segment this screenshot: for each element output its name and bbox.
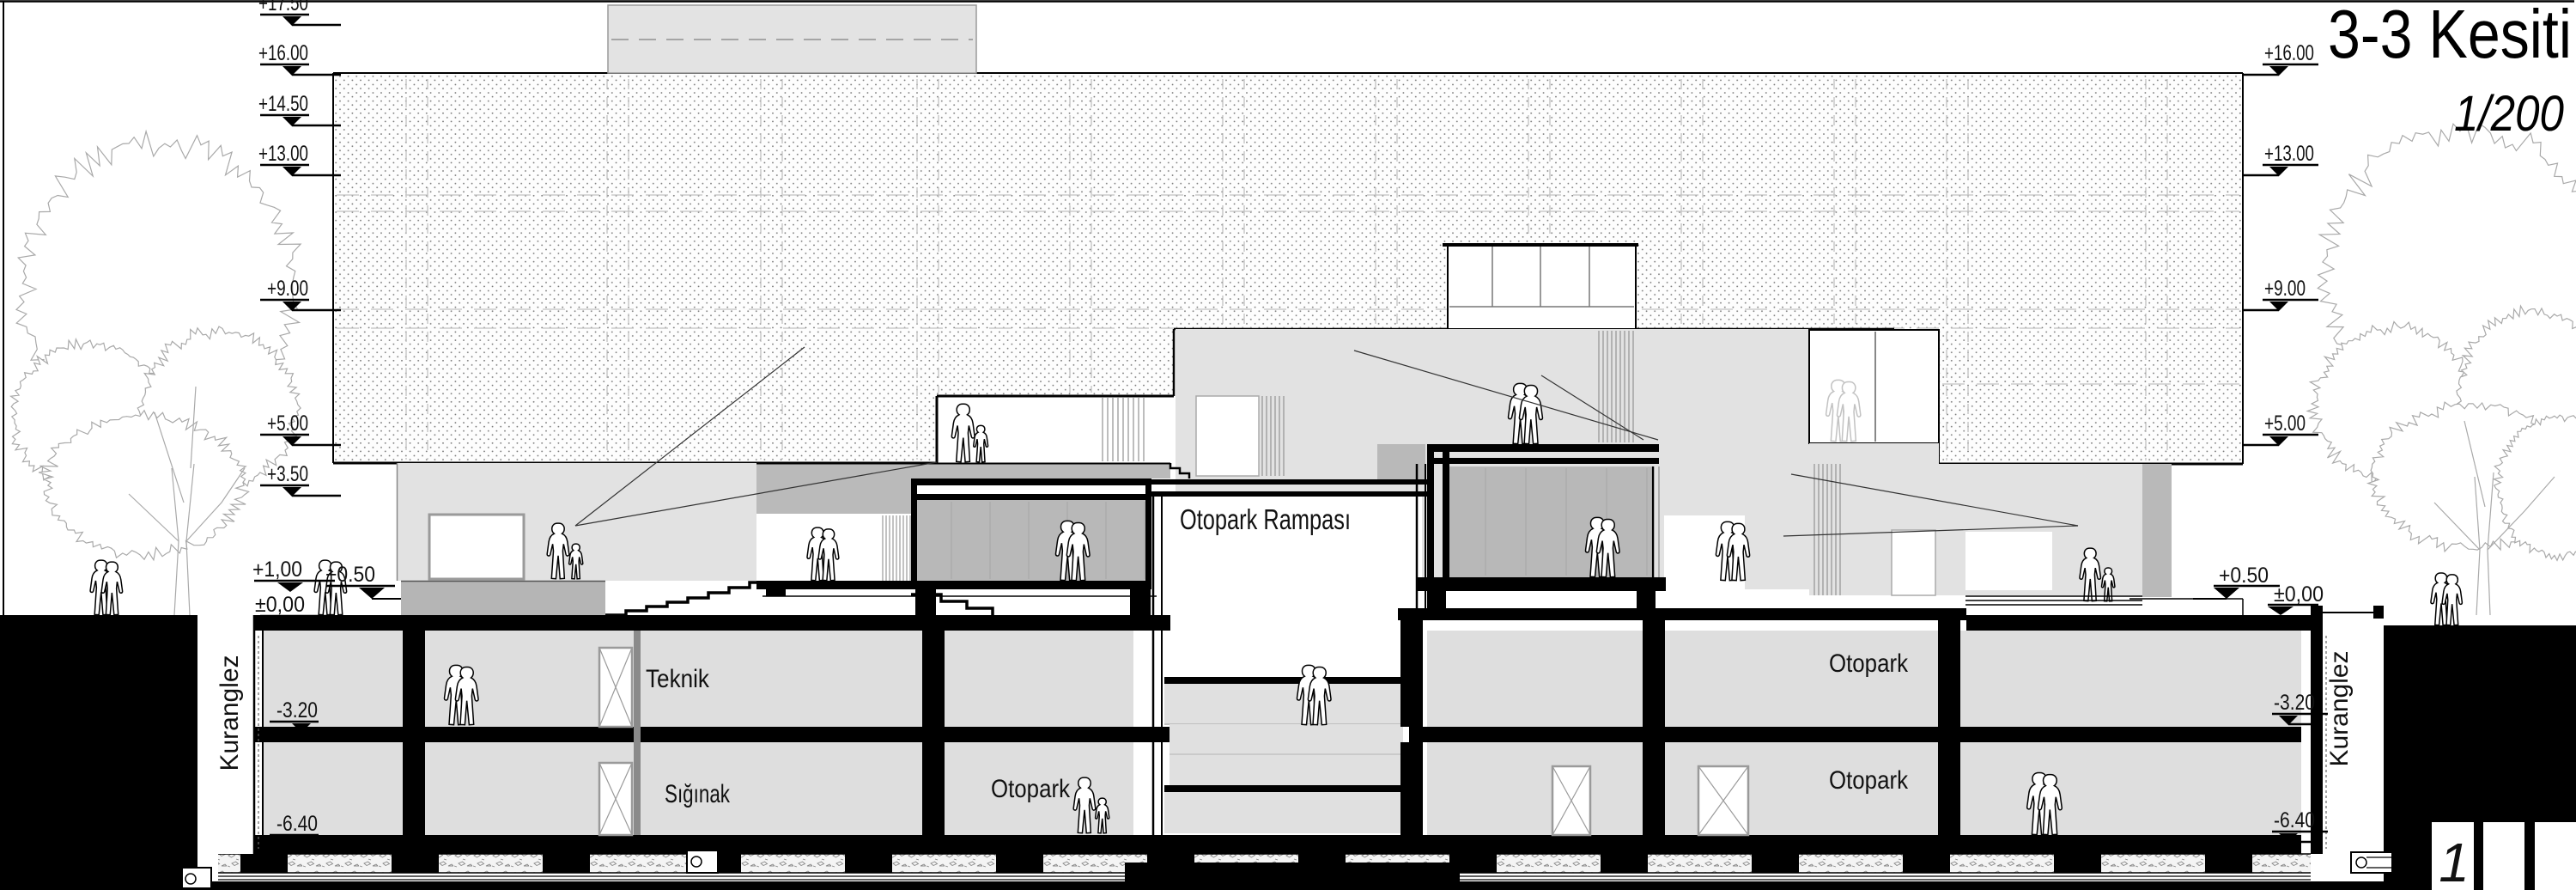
svg-text:+17.50: +17.50 <box>258 0 308 15</box>
svg-text:1/200: 1/200 <box>2454 86 2564 142</box>
svg-text:Otopark: Otopark <box>1829 766 1909 795</box>
svg-text:±0,00: ±0,00 <box>2274 582 2324 607</box>
svg-text:+3.50: +3.50 <box>267 462 308 486</box>
svg-text:+1,00: +1,00 <box>252 558 302 582</box>
svg-text:Otopark: Otopark <box>991 775 1071 803</box>
svg-text:Sığınak: Sığınak <box>665 780 731 808</box>
svg-text:-3.20: -3.20 <box>276 698 318 722</box>
svg-text:+13.00: +13.00 <box>2264 142 2314 166</box>
svg-text:+14.50: +14.50 <box>258 92 308 116</box>
svg-text:Otopark: Otopark <box>1829 649 1909 678</box>
svg-text:+5.00: +5.00 <box>267 411 308 436</box>
svg-text:+9.00: +9.00 <box>2264 277 2306 301</box>
svg-text:1: 1 <box>2439 832 2470 890</box>
svg-text:-6.40: -6.40 <box>2274 808 2315 832</box>
svg-text:-6.40: -6.40 <box>276 812 318 836</box>
svg-text:+0.50: +0.50 <box>2219 564 2269 588</box>
svg-text:Otopark Rampası: Otopark Rampası <box>1180 503 1351 535</box>
svg-text:±0,00: ±0,00 <box>255 593 305 617</box>
svg-text:+5.00: +5.00 <box>2264 411 2306 436</box>
svg-text:-3.20: -3.20 <box>2274 691 2315 715</box>
svg-text:Kuranglez: Kuranglez <box>2325 650 2354 766</box>
svg-text:+9.00: +9.00 <box>267 277 308 301</box>
svg-text:3-3 Kesiti: 3-3 Kesiti <box>2328 0 2572 72</box>
svg-text:Kuranglez: Kuranglez <box>216 655 244 771</box>
svg-text:+16.00: +16.00 <box>258 41 308 65</box>
svg-text:+13.00: +13.00 <box>258 142 308 166</box>
svg-text:Teknik: Teknik <box>646 665 710 693</box>
svg-text:+16.00: +16.00 <box>2264 41 2314 65</box>
svg-text:+0.50: +0.50 <box>325 563 375 587</box>
